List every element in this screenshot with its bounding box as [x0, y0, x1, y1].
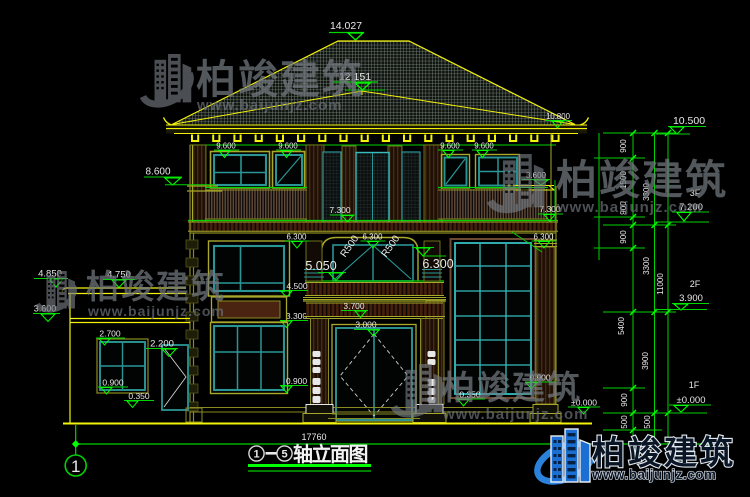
svg-text:2.700: 2.700	[99, 329, 121, 339]
svg-text:3.900: 3.900	[679, 293, 703, 304]
svg-text:柏竣建筑: 柏竣建筑	[86, 268, 226, 305]
svg-text:柏竣建筑: 柏竣建筑	[196, 58, 364, 102]
svg-text:3.000: 3.000	[355, 320, 377, 330]
svg-text:900: 900	[619, 230, 628, 244]
svg-text:0.900: 0.900	[286, 376, 308, 386]
svg-text:6.300: 6.300	[533, 233, 554, 242]
svg-text:10.500: 10.500	[673, 115, 705, 127]
svg-text:柏竣建筑: 柏竣建筑	[442, 369, 582, 406]
svg-text:14.027: 14.027	[330, 20, 362, 32]
svg-text:0.900: 0.900	[102, 378, 124, 388]
svg-text:5400: 5400	[617, 317, 626, 335]
svg-text:6.300: 6.300	[362, 233, 383, 242]
svg-text:1: 1	[253, 449, 259, 461]
svg-text:2F: 2F	[690, 279, 701, 289]
svg-text:500: 500	[643, 415, 652, 429]
svg-text:8.600: 8.600	[145, 167, 170, 178]
svg-text:2.200: 2.200	[150, 339, 174, 350]
svg-text:www.baijunjz.com: www.baijunjz.com	[556, 199, 702, 216]
svg-text:3300: 3300	[642, 257, 651, 275]
svg-text:www.baijunjz.com: www.baijunjz.com	[591, 467, 717, 482]
svg-text:9.600: 9.600	[474, 142, 494, 151]
svg-text:www.baijunjz.com: www.baijunjz.com	[87, 303, 225, 319]
svg-text:9.600: 9.600	[216, 142, 236, 151]
svg-text:900: 900	[620, 393, 629, 407]
svg-text:6.300: 6.300	[286, 233, 307, 242]
svg-text:9.600: 9.600	[278, 142, 298, 151]
svg-text:±0.000: ±0.000	[677, 395, 706, 406]
svg-text:11000: 11000	[656, 273, 665, 295]
svg-text:3900: 3900	[641, 352, 650, 370]
svg-text:3.700: 3.700	[343, 301, 365, 311]
svg-text:900: 900	[619, 139, 628, 153]
svg-text:1: 1	[71, 457, 80, 476]
svg-text:5.050: 5.050	[305, 259, 336, 273]
svg-text:www.baijunjz.com: www.baijunjz.com	[442, 406, 588, 423]
svg-text:0.350: 0.350	[128, 391, 150, 401]
svg-text:柏竣建筑: 柏竣建筑	[556, 157, 728, 203]
svg-text:10.800: 10.800	[546, 112, 571, 121]
svg-text:500: 500	[620, 415, 629, 429]
svg-text:9.600: 9.600	[440, 142, 460, 151]
svg-text:4.500: 4.500	[286, 281, 308, 291]
svg-text:7.300: 7.300	[329, 205, 351, 215]
svg-text:17760: 17760	[301, 432, 326, 442]
svg-text:6.300: 6.300	[422, 257, 453, 271]
svg-text:1F: 1F	[689, 380, 700, 390]
svg-text:柏竣建筑: 柏竣建筑	[592, 434, 736, 471]
svg-text:www.baijunjz.com: www.baijunjz.com	[196, 97, 342, 114]
svg-text:5: 5	[281, 449, 287, 461]
svg-text:轴立面图: 轴立面图	[293, 442, 367, 466]
